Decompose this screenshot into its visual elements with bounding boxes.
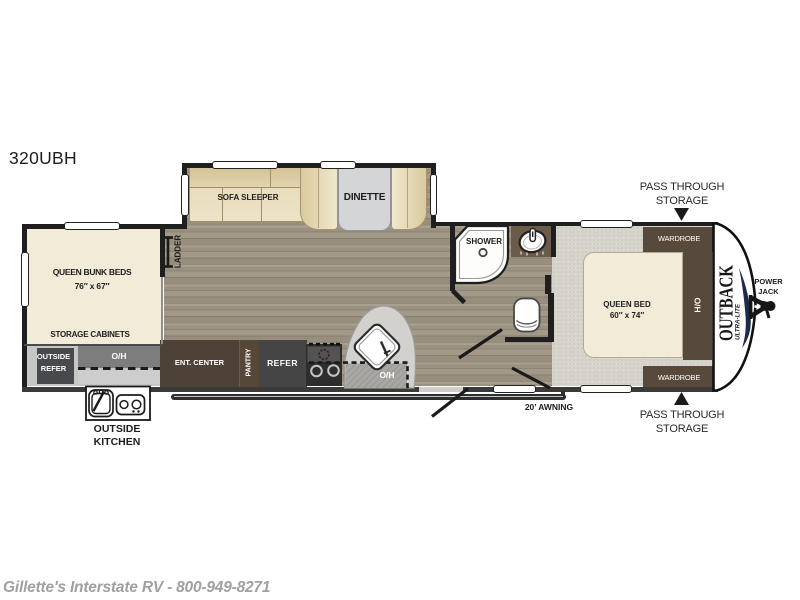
svg-text:OUTBACK: OUTBACK: [717, 264, 738, 341]
svg-text:ULTRA-LITE: ULTRA-LITE: [736, 303, 742, 340]
